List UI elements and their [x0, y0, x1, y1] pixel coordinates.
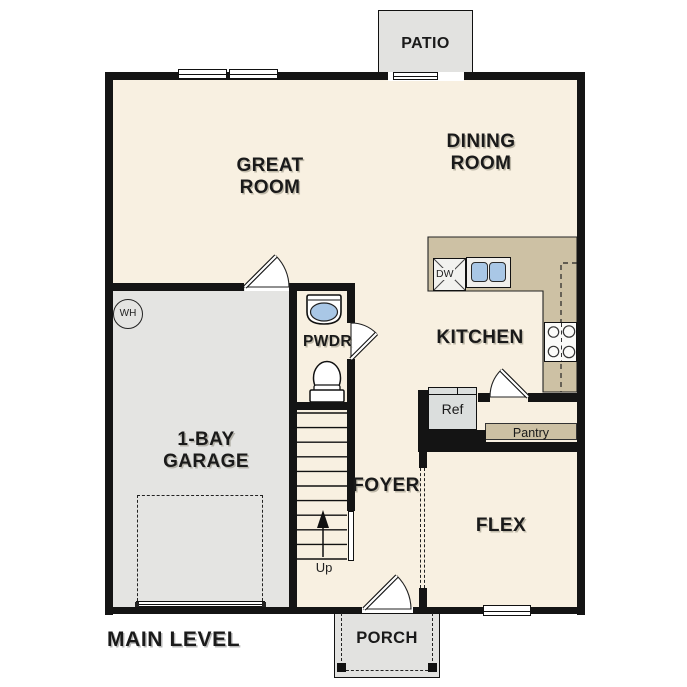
great-room-label: GREAT ROOM — [210, 155, 330, 198]
garage-label: 1-BAY GARAGE — [146, 429, 266, 472]
garage-label-line2: GARAGE — [146, 451, 266, 473]
front-door — [364, 576, 411, 609]
patio-label: PATIO — [378, 33, 473, 55]
garage-label-line1: 1-BAY — [146, 429, 266, 451]
great-room-garage-door — [245, 256, 289, 287]
great-room-label-line1: GREAT — [210, 155, 330, 177]
stairs-up-label: Up — [306, 560, 342, 575]
floor-plan: DW Ref Pantry — [0, 0, 687, 687]
flex-label: FLEX — [462, 515, 540, 537]
great-room-label-line2: ROOM — [210, 177, 330, 199]
kitchen-hall-door — [490, 370, 528, 397]
foyer-label: FOYER — [347, 475, 425, 497]
level-title: MAIN LEVEL — [107, 629, 357, 651]
dining-room-label-line2: ROOM — [421, 153, 541, 175]
powder-label: PWDR — [299, 331, 356, 353]
kitchen-label: KITCHEN — [420, 327, 540, 349]
dining-room-label: DINING ROOM — [421, 131, 541, 174]
dining-room-label-line1: DINING — [421, 131, 541, 153]
